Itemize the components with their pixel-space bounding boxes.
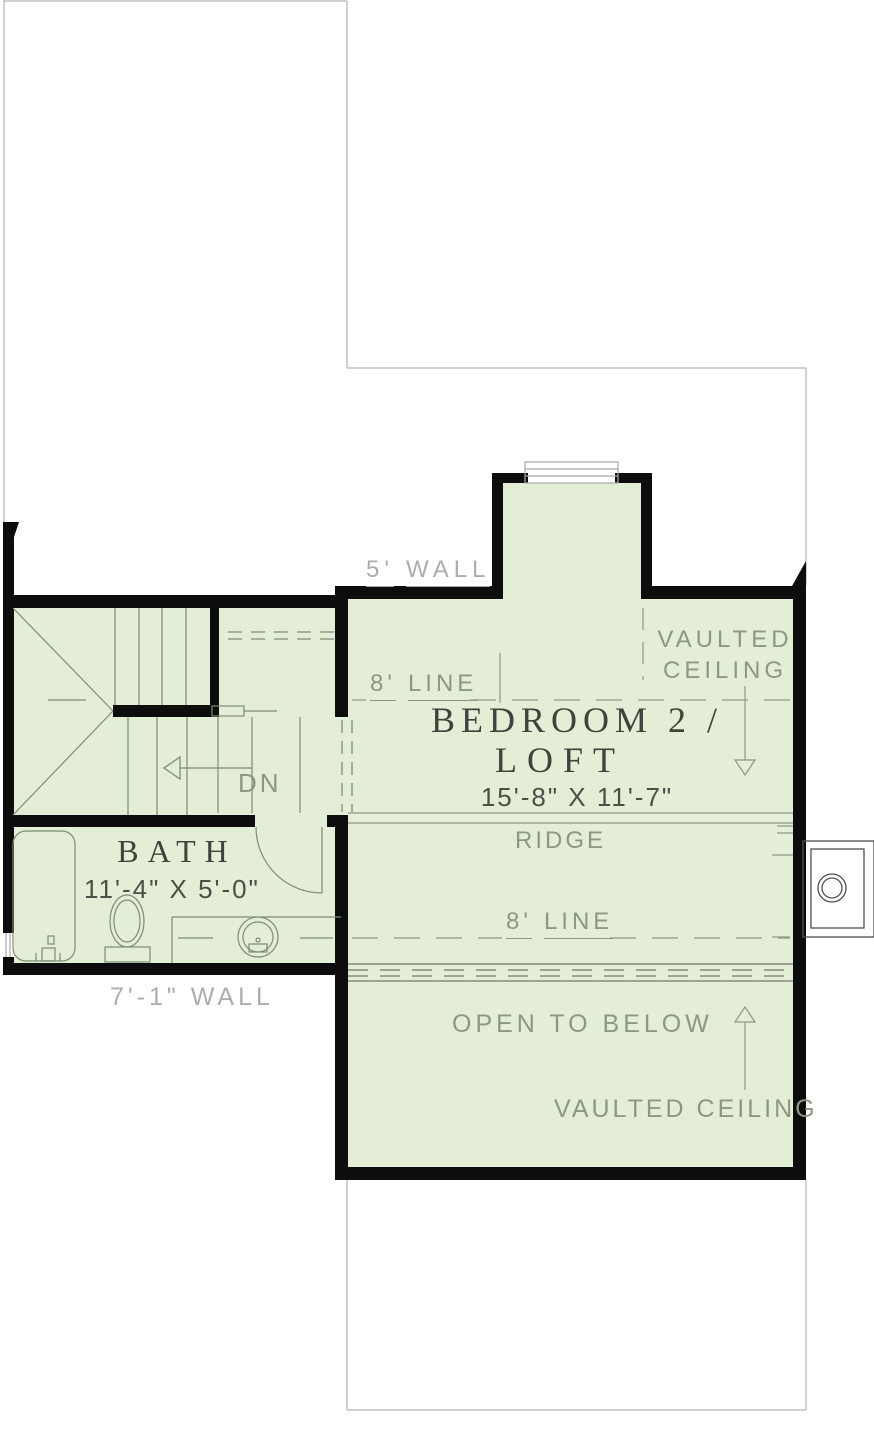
wall-dormer-cap-left xyxy=(492,473,528,483)
wall-bath-top-stub xyxy=(327,815,348,827)
floor-plan: 5'WALL VAULTED CEILING 8'LINE BEDROOM 2 … xyxy=(0,0,874,1453)
bedroom-name-line1: BEDROOM 2 / xyxy=(427,700,727,741)
wall-bedroom-top-left xyxy=(335,586,492,599)
bath-dimensions: 11'-4" X 5'-0" xyxy=(84,875,260,905)
wall-leftwing-top xyxy=(3,595,347,608)
bedroom-name-line2: LOFT xyxy=(410,740,710,781)
wall-bath-top xyxy=(3,815,255,827)
window-left-wall xyxy=(3,933,14,957)
wall-leftwing-bottom xyxy=(3,963,347,975)
eight-line-upper-label: 8'LINE xyxy=(370,670,477,698)
wall-bedroom-bottom xyxy=(335,1167,806,1180)
wall-stair-mid xyxy=(113,705,219,717)
eight-line-upper-value: 8' xyxy=(370,670,396,701)
bath-name: BATH xyxy=(112,833,242,870)
eight-line-lower-label: 8'LINE xyxy=(506,908,613,936)
eight-line-lower-value: 8' xyxy=(506,908,532,939)
floor-dormer-nook xyxy=(503,483,641,599)
ridge-label: RIDGE xyxy=(508,827,613,855)
wall-bedroom-top-right xyxy=(652,586,806,599)
wall-7ft-label: 7'-1" WALL xyxy=(110,983,274,1012)
vaulted-ceiling-top-label: VAULTED CEILING xyxy=(645,624,805,686)
wall-5ft-value: 5' xyxy=(366,556,394,587)
bedroom-dimensions: 15'-8" X 11'-7" xyxy=(427,783,727,813)
eight-line-upper-unit: LINE xyxy=(408,670,477,701)
wall-left-exterior xyxy=(3,522,14,975)
floor-opening-strip xyxy=(335,717,348,827)
vaulted-ceiling-top-line1: VAULTED xyxy=(645,624,805,655)
wall-5ft-label: 5'WALL xyxy=(366,556,490,584)
dormer-window xyxy=(525,462,618,483)
wall-5ft-unit: WALL xyxy=(406,556,490,587)
wall-closet xyxy=(210,608,219,712)
wall-bedroom-left-lower xyxy=(335,827,348,1180)
eight-line-lower-unit: LINE xyxy=(544,908,613,939)
dn-label: DN xyxy=(238,769,282,799)
vaulted-ceiling-bottom-label: VAULTED CEILING xyxy=(554,1095,818,1124)
open-to-below-label: OPEN TO BELOW xyxy=(452,1010,713,1039)
vaulted-ceiling-top-line2: CEILING xyxy=(645,655,805,686)
wall-bedroom-left-upper xyxy=(335,586,348,717)
floor-left-wing xyxy=(13,608,335,963)
wall-dormer-right xyxy=(641,473,652,599)
wall-dormer-left xyxy=(492,473,503,599)
